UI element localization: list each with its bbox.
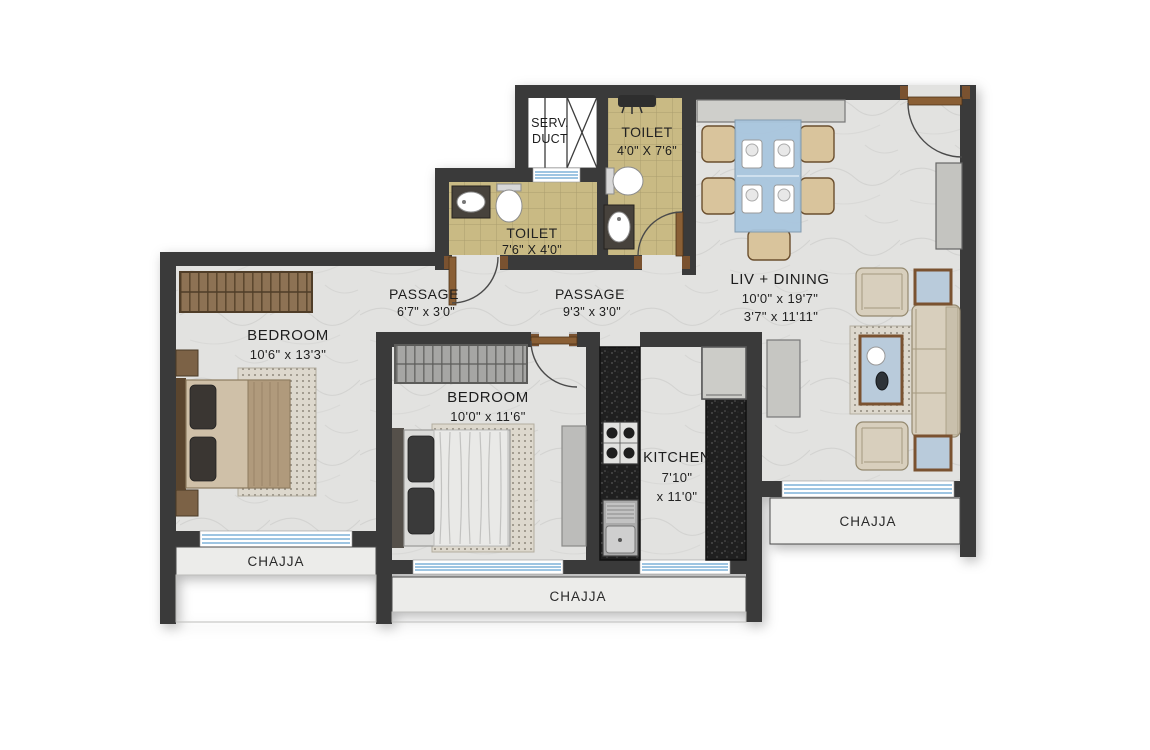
pillow-icon: [190, 437, 216, 481]
dining-chair-icon: [702, 126, 736, 162]
dining-chair-icon: [800, 126, 834, 162]
wall: [376, 332, 392, 624]
living-label: LIV + DINING: [730, 271, 829, 288]
chajja-bottom: CHAJJA: [392, 577, 746, 622]
toilet-mid-fixtures: [452, 184, 522, 222]
nightstand-icon: [176, 350, 198, 376]
passage-left-label: PASSAGE: [389, 286, 459, 302]
wall: [682, 85, 696, 275]
wardrobe-icon: [395, 345, 527, 383]
chajja-right: CHAJJA: [770, 498, 960, 544]
dining-chair-icon: [800, 178, 834, 214]
kitchen-label: KITCHEN: [643, 450, 711, 466]
washbasin-icon: [604, 205, 634, 249]
wall-left: [160, 252, 176, 624]
passage-left-dims: 6'7" x 3'0": [397, 305, 455, 319]
chajja-bottom-label: CHAJJA: [549, 589, 606, 604]
wall: [577, 332, 586, 347]
floorplan-canvas: CHAJJA CHAJJA CHAJJA SERV. DUCT TOILET 4…: [0, 0, 1150, 750]
serv-duct-label-2: DUCT: [532, 132, 568, 146]
wc-icon: [496, 184, 522, 222]
living-dims-1: 10'0" x 19'7": [742, 291, 819, 306]
pillow-icon: [190, 385, 216, 429]
floorplan-svg: CHAJJA CHAJJA CHAJJA SERV. DUCT TOILET 4…: [0, 0, 1150, 750]
wall: [515, 85, 528, 180]
pillow-icon: [408, 436, 434, 482]
passage-right-dims: 9'3" x 3'0": [563, 305, 621, 319]
passage-right-label: PASSAGE: [555, 286, 625, 302]
chajja-left: CHAJJA: [176, 547, 376, 622]
armchair-icon: [856, 268, 908, 316]
toilet-top-label: TOILET: [621, 124, 672, 140]
window-toilet-mid: [533, 168, 580, 182]
wall: [586, 332, 600, 574]
wall: [746, 332, 762, 622]
bedroom-left-label: BEDROOM: [247, 327, 329, 344]
serv-duct-label-1: SERV.: [531, 116, 569, 130]
coffee-table-icon: [850, 326, 912, 414]
bedroom-left-furniture: [176, 272, 316, 516]
window-bedroom-left: [200, 531, 352, 547]
dining-chair-icon: [702, 178, 736, 214]
washbasin-icon: [452, 186, 490, 218]
wall: [954, 481, 976, 497]
bedroom-mid-dims: 10'0" x 11'6": [450, 409, 526, 424]
shoe-cabinet-icon: [936, 163, 962, 249]
pillow-icon: [408, 488, 434, 534]
toilet-mid-label: TOILET: [506, 225, 557, 241]
bedroom-mid-label: BEDROOM: [447, 389, 529, 406]
wall: [580, 168, 607, 182]
toilet-top-dims: 4'0" X 7'6": [617, 144, 677, 158]
wall: [730, 560, 762, 574]
sofa-icon: [912, 305, 960, 437]
kitchen-dims-1: 7'10": [662, 470, 693, 485]
window-bedroom-mid: [413, 560, 563, 574]
kitchen-dims-2: x 11'0": [657, 489, 698, 504]
wall: [500, 255, 597, 270]
stove-icon: [603, 422, 638, 464]
window-living: [782, 481, 954, 497]
wc-icon: [606, 167, 643, 195]
wall: [176, 531, 200, 547]
side-table-icon: [915, 270, 951, 304]
fridge-icon: [702, 347, 746, 399]
wall: [688, 85, 908, 100]
wall: [563, 560, 640, 574]
bed-icon: [392, 428, 510, 548]
bedroom-left-dims: 10'6" x 13'3": [250, 347, 327, 362]
kitchen-counter-right: [706, 399, 746, 560]
nightstand-icon: [176, 490, 198, 516]
wall: [435, 168, 533, 182]
sink-icon: [603, 500, 638, 556]
floorplan: CHAJJA CHAJJA CHAJJA SERV. DUCT TOILET 4…: [160, 85, 976, 624]
side-table-icon: [915, 436, 951, 470]
window-kitchen: [640, 560, 730, 574]
armchair-icon: [856, 422, 908, 470]
doorway-floor: [600, 332, 640, 347]
toilet-mid-dims: 7'6" X 4'0": [502, 243, 562, 257]
tv-unit-icon: [767, 340, 800, 417]
doorway-floor: [452, 255, 500, 270]
dresser-icon: [562, 426, 586, 546]
dining-chair-icon: [748, 230, 790, 260]
chajja-left-label: CHAJJA: [247, 554, 304, 569]
doorway-floor: [642, 255, 682, 270]
sideboard-icon: [697, 100, 845, 122]
wall: [392, 560, 413, 574]
wall: [160, 252, 445, 266]
living-dims-2: 3'7" x 11'11": [744, 309, 819, 324]
wardrobe-icon: [180, 272, 312, 312]
chajja-right-label: CHAJJA: [839, 514, 896, 529]
wall: [640, 332, 762, 347]
wall: [762, 481, 782, 497]
